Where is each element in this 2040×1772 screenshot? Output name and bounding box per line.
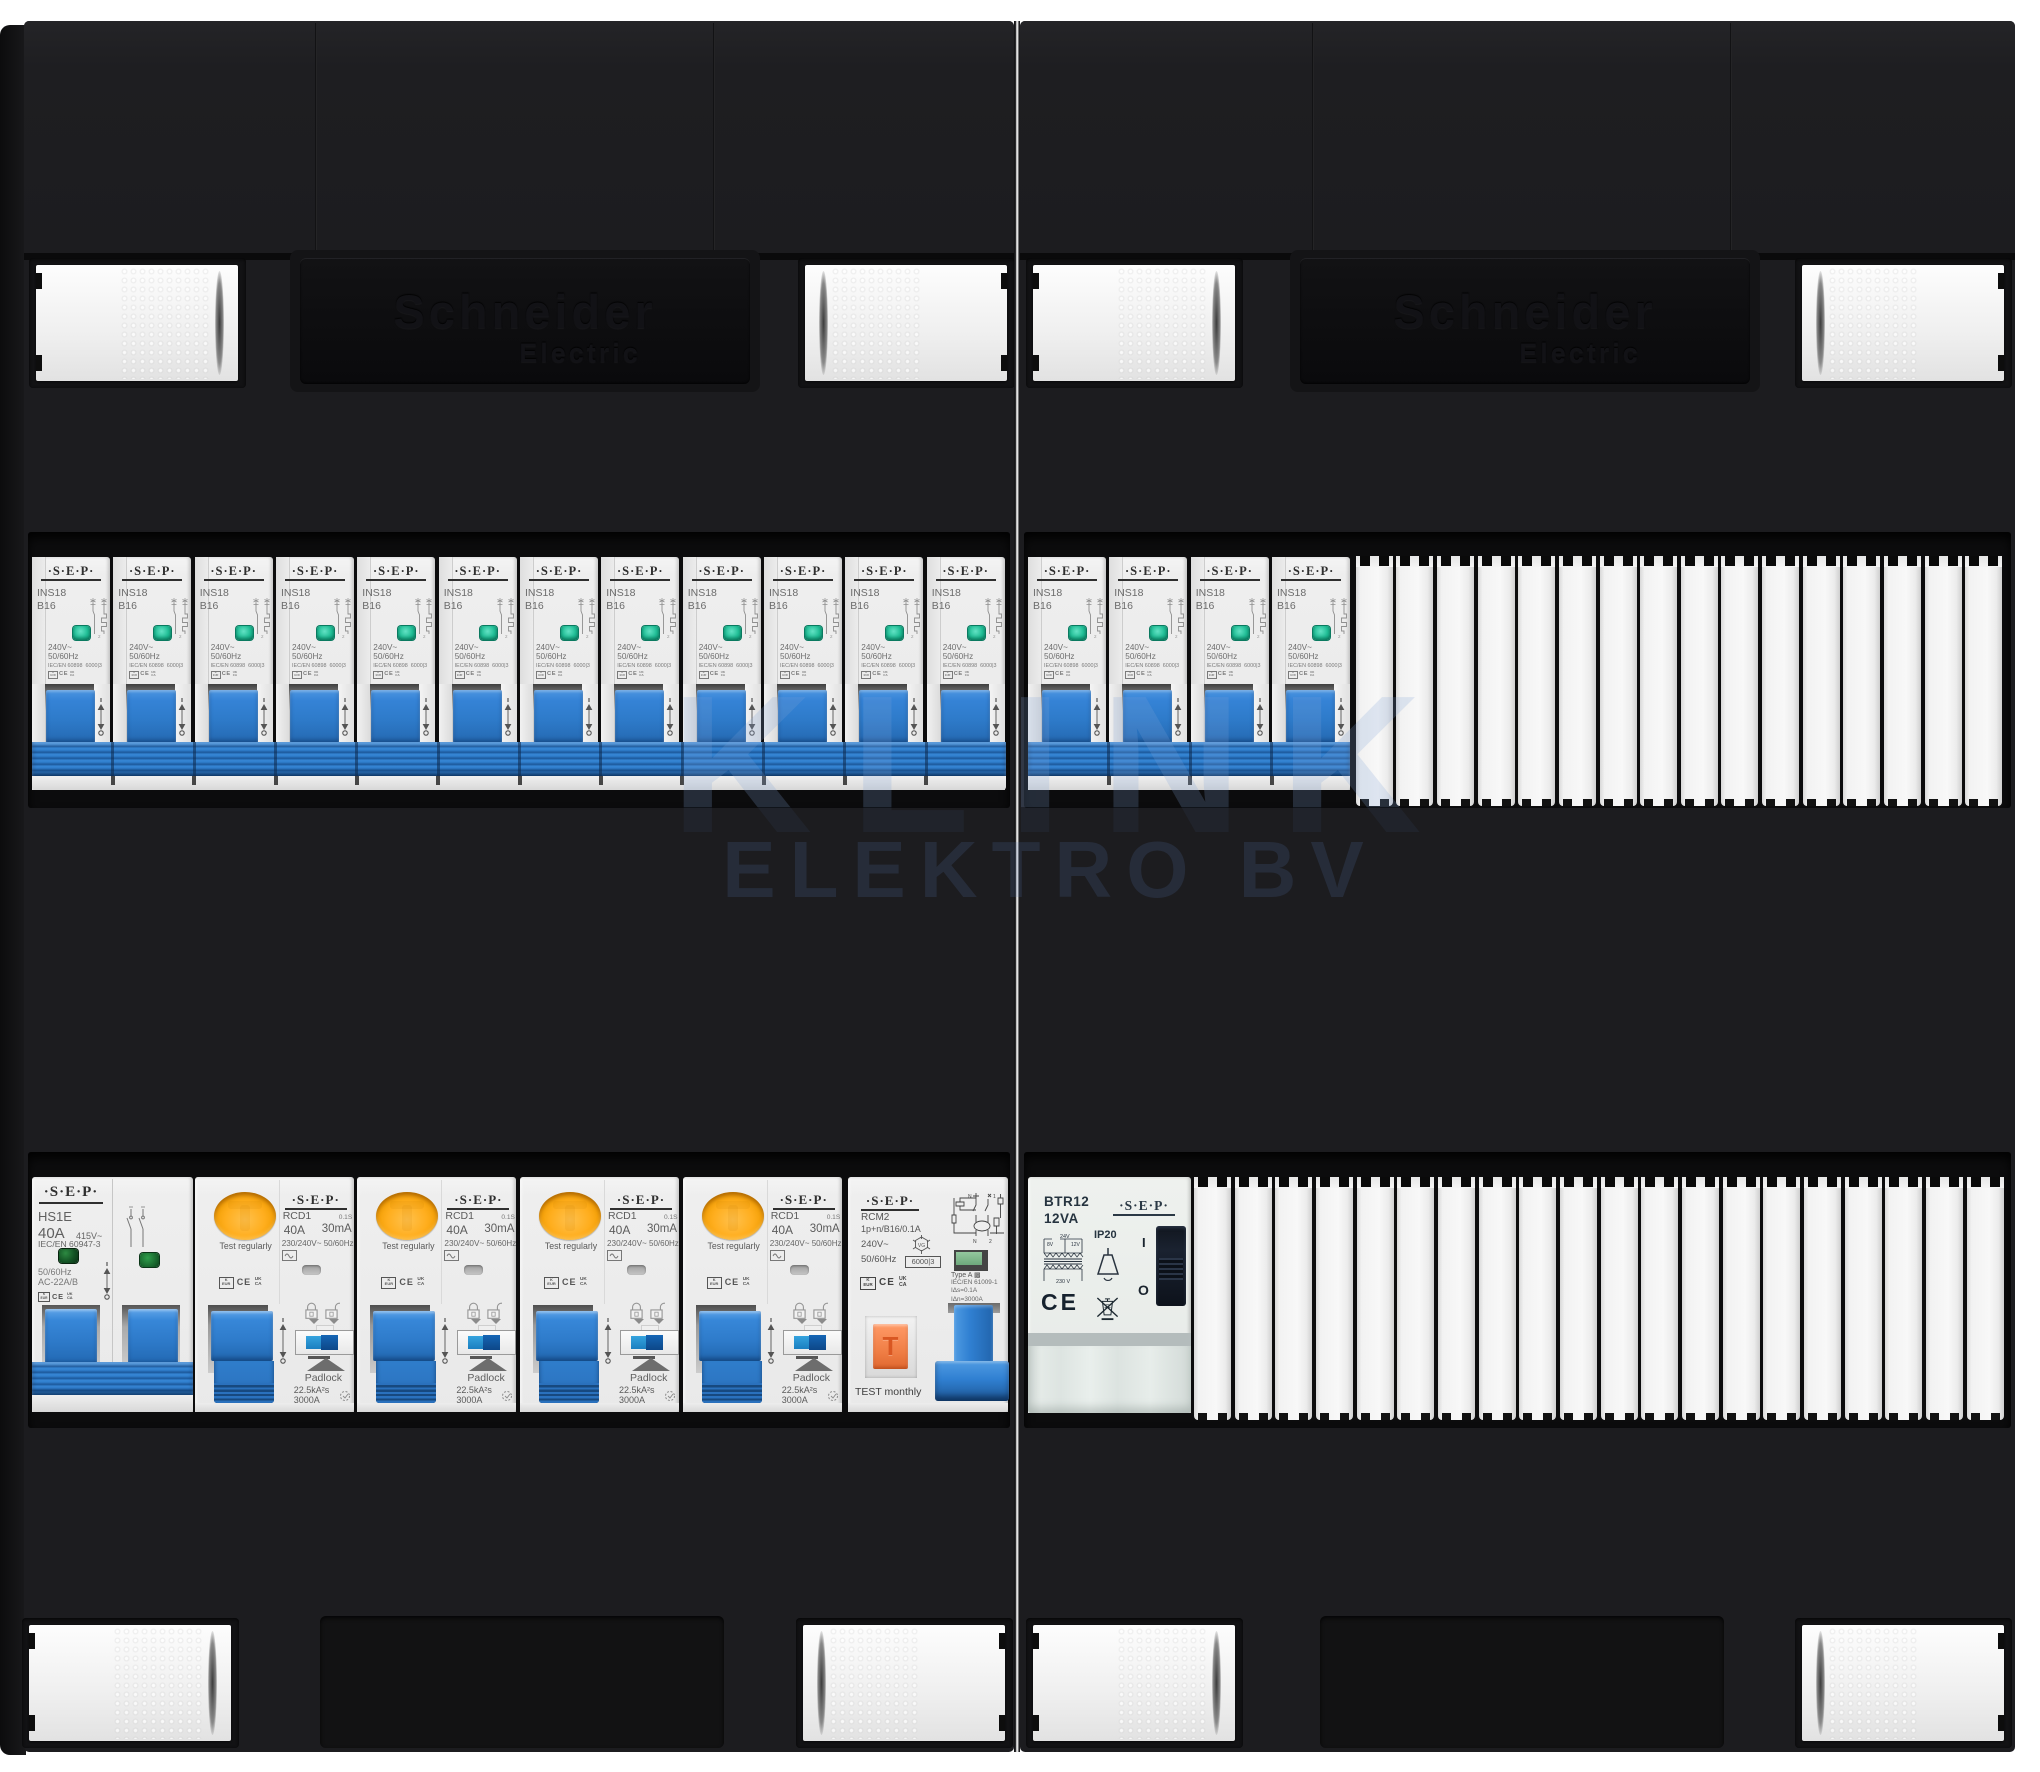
svg-text:N: N [973,1239,977,1245]
svg-text:1: 1 [993,1194,996,1200]
svg-text:24V: 24V [1060,1234,1070,1240]
svg-text:8V: 8V [1047,1242,1054,1248]
svg-text:N: N [968,1194,972,1200]
svg-text:2: 2 [989,1239,992,1245]
svg-text:12V: 12V [1071,1242,1081,1248]
svg-text:230 V: 230 V [1056,1279,1070,1285]
svg-text:VG: VG [918,1243,925,1249]
